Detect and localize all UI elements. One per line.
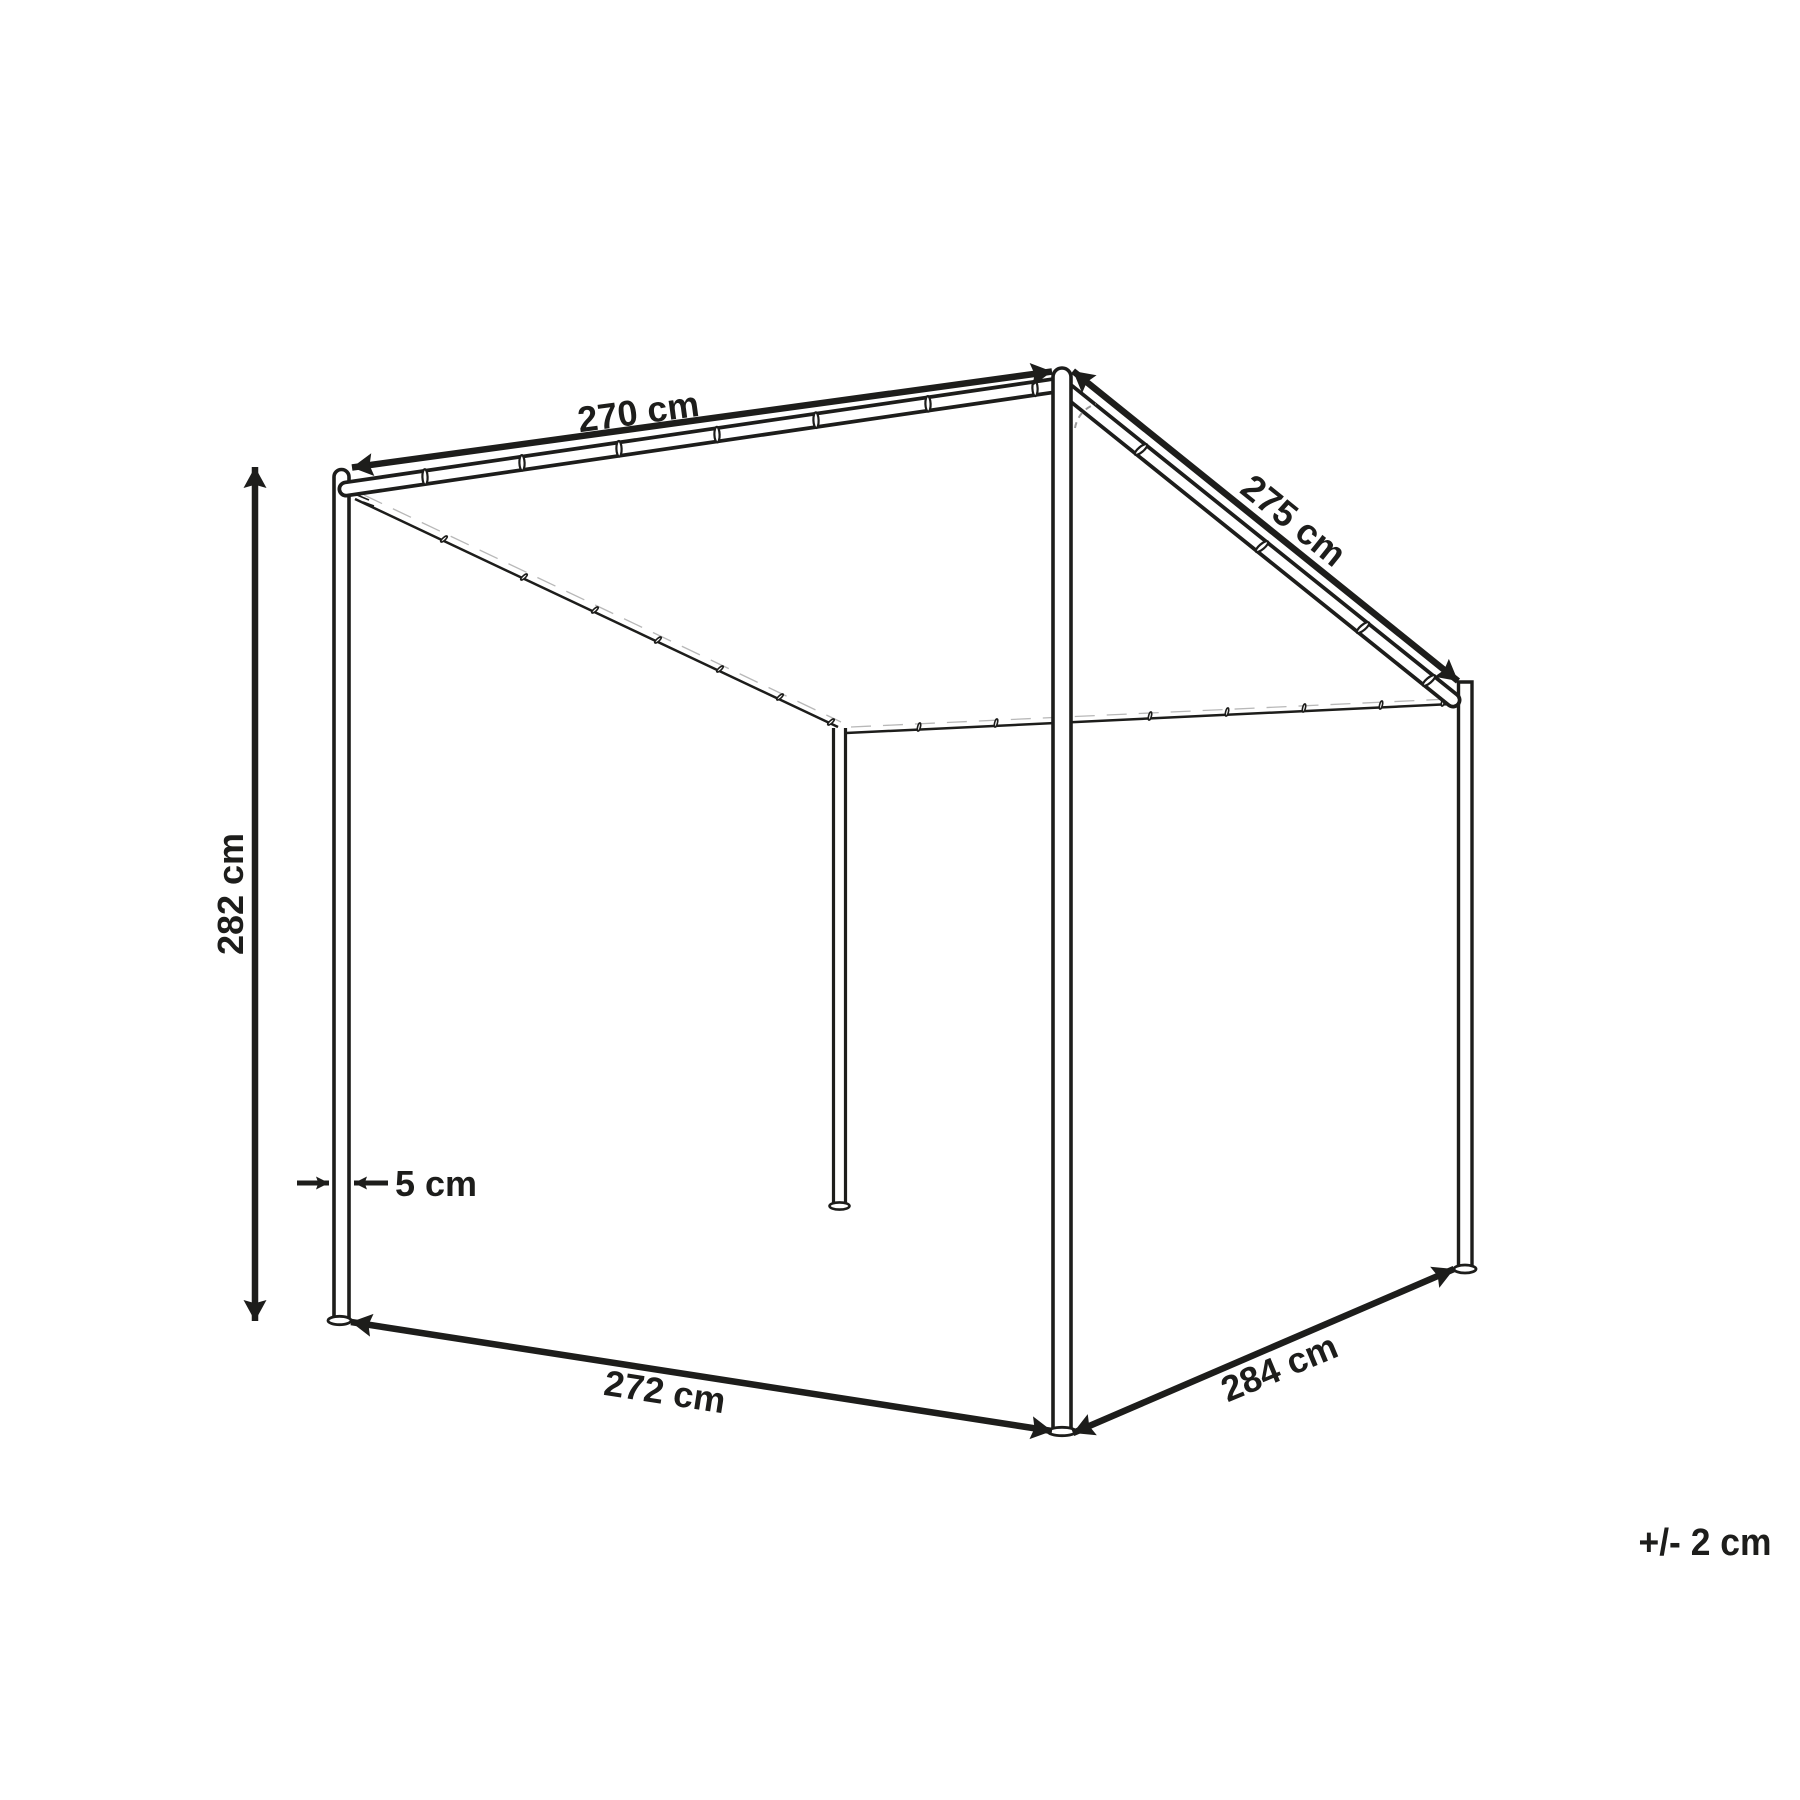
svg-text:5 cm: 5 cm xyxy=(395,1163,477,1204)
svg-text:282 cm: 282 cm xyxy=(210,833,251,955)
svg-text:+/- 2 cm: +/- 2 cm xyxy=(1639,1522,1772,1564)
